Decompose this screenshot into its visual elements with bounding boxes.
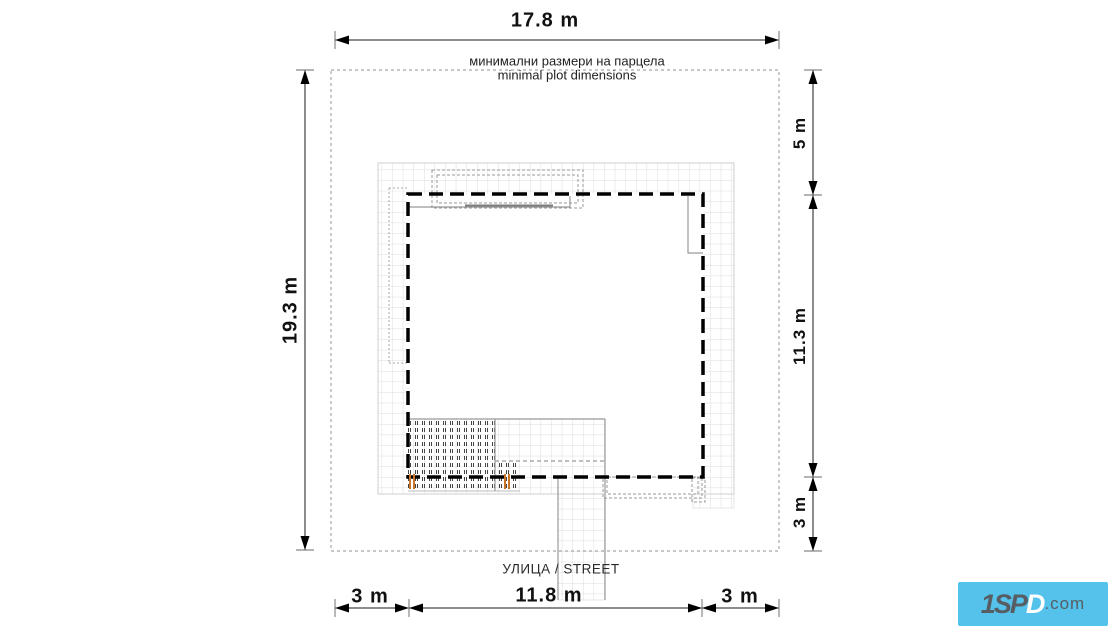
dimension-label-top: 17.8 m	[511, 10, 579, 33]
site-plan: 17.8 m минимални размери на парцела mini…	[0, 0, 1120, 632]
street-label: УЛИЦА / STREET	[502, 562, 619, 577]
dimension-label-right-middle: 11.3 m	[790, 307, 810, 365]
plot-note-english: minimal plot dimensions	[498, 68, 637, 83]
site-logo: 1SPD.com	[958, 582, 1108, 626]
logo-text-d: D	[1026, 589, 1044, 620]
logo-text-main: 1SP	[981, 589, 1026, 620]
dimension-label-left: 19.3 m	[280, 276, 303, 344]
dimension-label-right-bottom: 3 m	[790, 496, 810, 528]
logo-text-suffix: .com	[1044, 594, 1085, 614]
plot-note-bulgarian: минимални размери на парцела	[469, 54, 664, 69]
dimension-label-bottom-right: 3 m	[721, 586, 758, 609]
site-plan-drawing	[0, 0, 1120, 632]
dimension-label-bottom-left: 3 m	[351, 586, 388, 609]
dimension-label-bottom-middle: 11.8 m	[515, 585, 582, 608]
rear-canopy-fill	[604, 478, 693, 498]
dimension-label-right-top: 5 m	[790, 117, 810, 149]
